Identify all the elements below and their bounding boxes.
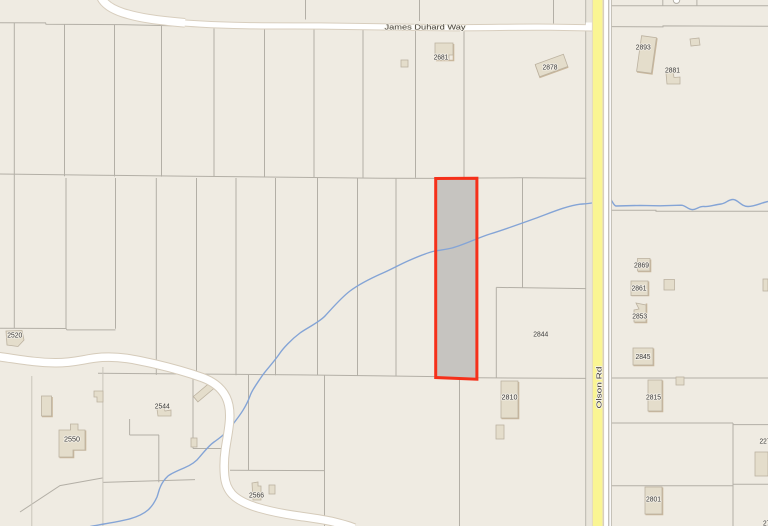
svg-text:2520: 2520 bbox=[7, 330, 22, 339]
svg-text:2845: 2845 bbox=[636, 352, 651, 361]
svg-text:2810: 2810 bbox=[502, 393, 518, 402]
svg-text:2844: 2844 bbox=[533, 330, 548, 339]
svg-text:2893: 2893 bbox=[636, 43, 651, 52]
svg-text:2566: 2566 bbox=[249, 491, 264, 500]
svg-text:2853: 2853 bbox=[632, 311, 647, 320]
svg-text:2801: 2801 bbox=[646, 495, 661, 504]
svg-text:2869: 2869 bbox=[634, 261, 649, 270]
svg-text:227: 227 bbox=[760, 437, 768, 446]
svg-text:2544: 2544 bbox=[155, 401, 170, 410]
svg-text:2681: 2681 bbox=[434, 53, 449, 62]
svg-text:2550: 2550 bbox=[64, 435, 80, 444]
svg-text:272: 272 bbox=[763, 519, 768, 526]
svg-text:2815: 2815 bbox=[646, 393, 661, 402]
svg-text:2878: 2878 bbox=[543, 63, 558, 72]
svg-text:James Duhard Way: James Duhard Way bbox=[385, 23, 466, 32]
svg-text:2861: 2861 bbox=[632, 283, 647, 292]
svg-text:Olson Rd: Olson Rd bbox=[595, 367, 604, 409]
svg-text:2881: 2881 bbox=[665, 66, 680, 75]
